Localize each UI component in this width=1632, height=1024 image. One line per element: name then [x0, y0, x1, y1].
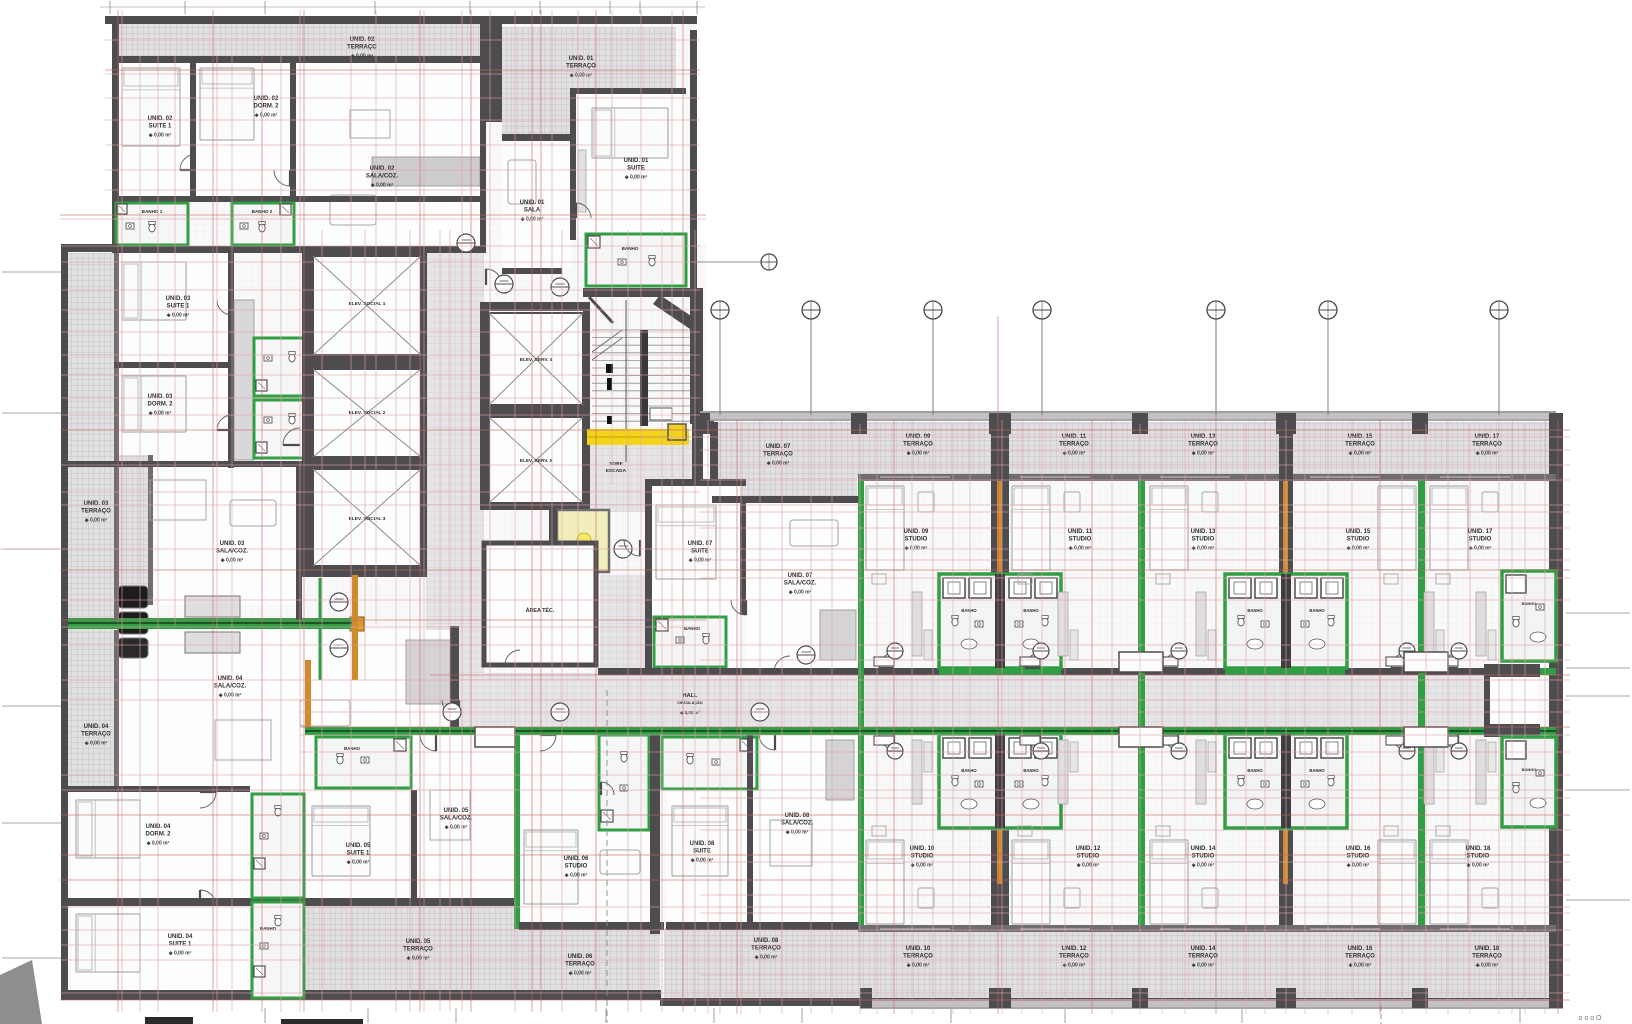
svg-text:◈ 0,00 m²: ◈ 0,00 m² — [910, 863, 934, 869]
svg-text:BANHO: BANHO — [1247, 768, 1263, 773]
svg-text:TERRAÇO: TERRAÇO — [1059, 954, 1089, 960]
svg-text:BANHO: BANHO — [1522, 601, 1537, 606]
svg-text:UNID. 04: UNID. 04 — [84, 724, 109, 730]
svg-text:TERRAÇO: TERRAÇO — [81, 509, 111, 515]
svg-text:UNID. 18: UNID. 18 — [1466, 846, 1491, 852]
svg-text:◈ 0,00 m²: ◈ 0,00 m² — [1475, 963, 1499, 969]
svg-text:UNID. 04: UNID. 04 — [218, 676, 243, 682]
svg-text:◈ 0,00 m²: ◈ 0,00 m² — [1076, 863, 1100, 869]
svg-text:UNID. 05: UNID. 05 — [346, 843, 371, 849]
svg-text:TERRAÇO: TERRAÇO — [1472, 442, 1502, 448]
svg-text:TERRAÇO: TERRAÇO — [1345, 954, 1375, 960]
svg-text:STUDIO: STUDIO — [1347, 854, 1370, 860]
svg-text:STUDIO: STUDIO — [905, 537, 928, 543]
svg-text:◈ 0,00 m²: ◈ 0,00 m² — [166, 313, 190, 319]
svg-text:TERRAÇO: TERRAÇO — [81, 732, 111, 738]
svg-text:◈ 0,00 m²: ◈ 0,00 m² — [906, 451, 930, 457]
svg-text:BANHO: BANHO — [1023, 608, 1039, 613]
svg-text:UNID. 06: UNID. 06 — [568, 954, 593, 960]
svg-text:UNID. 08: UNID. 08 — [754, 938, 779, 944]
svg-text:◈ 0,00 m²: ◈ 0,00 m² — [1346, 863, 1370, 869]
svg-text:TERRAÇO: TERRAÇO — [347, 45, 377, 51]
svg-text:UNID. 18: UNID. 18 — [1475, 946, 1500, 952]
svg-text:UNID. 12: UNID. 12 — [1076, 846, 1101, 852]
svg-text:UNID. 13: UNID. 13 — [1191, 529, 1216, 535]
svg-text:◈ 0,00 m²: ◈ 0,00 m² — [1348, 451, 1372, 457]
svg-text:UNID. 03: UNID. 03 — [84, 501, 109, 507]
svg-text:◈ 0,00 m²: ◈ 0,00 m² — [564, 873, 588, 879]
svg-text:ÁREA TÉC.: ÁREA TÉC. — [526, 606, 555, 614]
svg-text:SALA/COZ.: SALA/COZ. — [366, 174, 399, 180]
svg-text:◈ 0,00 m²: ◈ 0,00 m² — [1466, 863, 1490, 869]
svg-text:◈ 0,00 m²: ◈ 0,00 m² — [690, 858, 714, 864]
svg-text:o o o O: o o o O — [1579, 1015, 1603, 1022]
svg-text:◈ 0,00 m²: ◈ 0,00 m² — [350, 54, 374, 60]
svg-text:STUDIO: STUDIO — [1192, 537, 1215, 543]
svg-text:◈ 0,00 m²: ◈ 0,00 m² — [1191, 963, 1215, 969]
svg-text:UNID. 01: UNID. 01 — [624, 158, 649, 164]
svg-text:ELEV. SERV. 4: ELEV. SERV. 4 — [520, 357, 553, 363]
svg-text:◈ 0,00 m²: ◈ 0,00 m² — [346, 860, 370, 866]
svg-text:DORM. 2: DORM. 2 — [147, 402, 173, 408]
svg-text:TERRAÇO: TERRAÇO — [751, 946, 781, 952]
svg-text:UNID. 06: UNID. 06 — [564, 856, 589, 862]
svg-text:SALA/COZ.: SALA/COZ. — [440, 816, 473, 822]
svg-text:BANHO: BANHO — [344, 746, 361, 751]
svg-text:SUITE 1: SUITE 1 — [149, 124, 172, 130]
svg-text:UNID. 07: UNID. 07 — [766, 444, 791, 450]
svg-text:ESCADA: ESCADA — [606, 468, 627, 474]
svg-text:◈ 0,00 m²: ◈ 0,00 m² — [84, 741, 108, 747]
svg-text:◈ 0,00 m²: ◈ 0,00 m² — [788, 590, 812, 596]
svg-text:BANHO: BANHO — [961, 608, 977, 613]
svg-text:TERRAÇO: TERRAÇO — [1059, 442, 1089, 448]
svg-text:TERRAÇO: TERRAÇO — [1472, 954, 1502, 960]
svg-text:STUDIO: STUDIO — [1069, 537, 1092, 543]
svg-text:STUDIO: STUDIO — [1192, 854, 1215, 860]
svg-text:◈ 0,00 m²: ◈ 0,00 m² — [370, 183, 394, 189]
svg-text:UNID. 09: UNID. 09 — [904, 529, 929, 535]
svg-text:ELEV. SOCIAL 3: ELEV. SOCIAL 3 — [349, 516, 386, 522]
svg-text:BANHO: BANHO — [1247, 608, 1263, 613]
svg-text:HALL: HALL — [683, 693, 698, 699]
svg-text:◈ 0,00 m²: ◈ 0,00 m² — [254, 113, 278, 119]
svg-text:UNID. 02: UNID. 02 — [254, 96, 279, 102]
svg-text:◈ 0,00 m²: ◈ 0,00 m² — [406, 956, 430, 962]
svg-text:◈ 0,00 m²: ◈ 0,00 m² — [1191, 863, 1215, 869]
svg-text:STUDIO: STUDIO — [565, 864, 588, 870]
svg-text:UNID. 05: UNID. 05 — [406, 939, 431, 945]
svg-text:TERRAÇO: TERRAÇO — [1345, 442, 1375, 448]
svg-text:SUITE 1: SUITE 1 — [347, 851, 370, 857]
svg-text:SUITE 1: SUITE 1 — [167, 304, 190, 310]
svg-text:CIRCULAÇÃO: CIRCULAÇÃO — [677, 700, 703, 705]
svg-text:◈ 0,00 m²: ◈ 0,00 m² — [906, 963, 930, 969]
svg-text:UNID. 08: UNID. 08 — [690, 841, 715, 847]
svg-text:UNID. 10: UNID. 10 — [906, 946, 931, 952]
svg-text:◈ 0,00 m²: ◈ 0,00 m² — [84, 518, 108, 524]
svg-text:◈ 0,00 m²: ◈ 0,00 m² — [444, 825, 468, 831]
svg-text:UNID. 16: UNID. 16 — [1348, 946, 1373, 952]
svg-text:TERRAÇO: TERRAÇO — [565, 962, 595, 968]
svg-text:STUDIO: STUDIO — [1347, 537, 1370, 543]
svg-text:◈ 0,00 m²: ◈ 0,00 m² — [218, 693, 242, 699]
svg-text:TERRAÇO: TERRAÇO — [903, 954, 933, 960]
svg-text:TERRAÇO: TERRAÇO — [763, 452, 793, 458]
svg-text:UNID. 11: UNID. 11 — [1068, 529, 1093, 535]
svg-text:◈ 0,00 m²: ◈ 0,00 m² — [624, 175, 648, 181]
svg-text:BANHO: BANHO — [1522, 767, 1537, 772]
svg-text:SUITE: SUITE — [627, 166, 645, 172]
svg-text:◈ 0,00 m²: ◈ 0,00 m² — [148, 133, 172, 139]
svg-text:TERRAÇO: TERRAÇO — [566, 64, 596, 70]
svg-text:SALA/COZ.: SALA/COZ. — [784, 581, 817, 587]
svg-text:TERRAÇO: TERRAÇO — [1188, 954, 1218, 960]
svg-text:BANHO: BANHO — [1023, 768, 1039, 773]
svg-text:SALA/COZ.: SALA/COZ. — [781, 821, 814, 827]
svg-text:SALA/COZ.: SALA/COZ. — [214, 684, 247, 690]
svg-text:ELEV. SOCIAL 1: ELEV. SOCIAL 1 — [349, 301, 386, 307]
svg-text:UNID. 15: UNID. 15 — [1346, 529, 1371, 535]
svg-text:◈ 0,00 m²: ◈ 0,00 m² — [148, 411, 172, 417]
svg-text:◈ 0,00 m²: ◈ 0,00 m² — [569, 73, 593, 79]
svg-text:◈ 0,00 m²: ◈ 0,00 m² — [1348, 963, 1372, 969]
svg-text:UNID. 17: UNID. 17 — [1468, 529, 1493, 535]
svg-text:UNID. 02: UNID. 02 — [370, 166, 395, 172]
svg-text:TERRAÇO: TERRAÇO — [403, 947, 433, 953]
svg-text:BANHO: BANHO — [961, 768, 977, 773]
svg-text:◈ 0,00 m²: ◈ 0,00 m² — [1475, 451, 1499, 457]
svg-text:BANHO: BANHO — [1309, 608, 1325, 613]
svg-text:STUDIO: STUDIO — [1469, 537, 1492, 543]
svg-text:UNID. 01: UNID. 01 — [569, 56, 594, 62]
svg-text:ELEV. SERV. 5: ELEV. SERV. 5 — [520, 458, 553, 464]
svg-text:UNID. 03: UNID. 03 — [166, 296, 191, 302]
svg-text:BANHO: BANHO — [1309, 768, 1325, 773]
svg-text:DORM. 2: DORM. 2 — [253, 104, 279, 110]
svg-text:BANHO 1: BANHO 1 — [142, 209, 163, 214]
svg-text:UNID. 02: UNID. 02 — [148, 116, 173, 122]
svg-text:◈ 0,00 m²: ◈ 0,00 m² — [766, 461, 790, 467]
svg-text:SOBE: SOBE — [609, 461, 623, 467]
svg-text:◈ 0,00 m²: ◈ 0,00 m² — [168, 951, 192, 957]
svg-text:UNID. 16: UNID. 16 — [1346, 846, 1371, 852]
svg-text:UNID. 04: UNID. 04 — [168, 934, 193, 940]
svg-text:TERRAÇO: TERRAÇO — [903, 442, 933, 448]
svg-text:STUDIO: STUDIO — [911, 854, 934, 860]
svg-text:UNID. 05: UNID. 05 — [444, 808, 469, 814]
svg-text:BANHO: BANHO — [622, 246, 639, 251]
svg-text:UNID. 14: UNID. 14 — [1191, 946, 1216, 952]
svg-text:TERRAÇO: TERRAÇO — [1188, 442, 1218, 448]
svg-text:UNID. 07: UNID. 07 — [688, 541, 713, 547]
svg-text:UNID. 03: UNID. 03 — [148, 394, 173, 400]
svg-text:◈ 0,00 m²: ◈ 0,00 m² — [1191, 451, 1215, 457]
svg-text:UNID. 10: UNID. 10 — [910, 846, 935, 852]
svg-text:◈ 0,00 m²: ◈ 0,00 m² — [568, 971, 592, 977]
svg-text:UNID. 08: UNID. 08 — [785, 813, 810, 819]
svg-text:UNID. 14: UNID. 14 — [1191, 846, 1216, 852]
svg-text:STUDIO: STUDIO — [1077, 854, 1100, 860]
